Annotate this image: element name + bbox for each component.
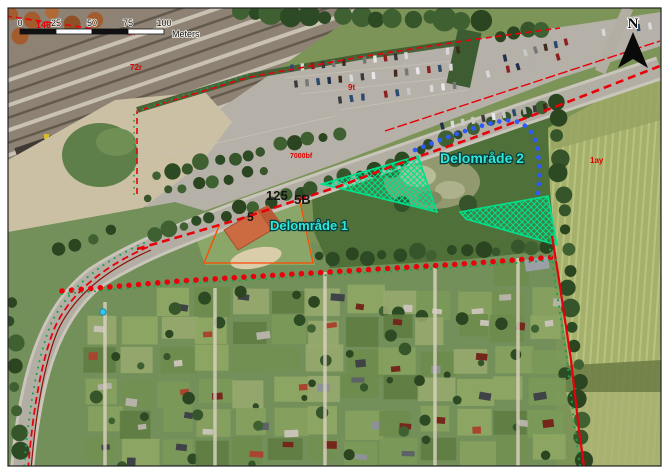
- garden-house: [355, 359, 366, 367]
- garden-house: [330, 293, 345, 301]
- garden-house: [391, 366, 401, 372]
- tree: [565, 265, 577, 277]
- parked-car: [453, 82, 457, 89]
- tree: [280, 6, 301, 27]
- tree: [215, 155, 225, 165]
- tree: [548, 163, 567, 182]
- garden-house: [472, 426, 481, 433]
- garden-plot: [268, 438, 303, 460]
- tree: [318, 11, 331, 24]
- tree: [221, 211, 232, 222]
- parked-car: [371, 72, 375, 79]
- tree: [476, 241, 493, 258]
- parked-car: [405, 68, 409, 75]
- tree: [4, 316, 14, 326]
- north-label: N: [628, 16, 639, 32]
- tree: [161, 221, 178, 238]
- parked-car: [361, 93, 365, 100]
- garden-tree: [163, 353, 170, 360]
- garden-plot: [163, 406, 192, 432]
- tree: [182, 163, 193, 174]
- garden-tree: [385, 329, 397, 341]
- garden-tree: [108, 418, 115, 425]
- garden-plot: [232, 380, 263, 408]
- garden-plot: [121, 347, 153, 373]
- tree: [8, 358, 23, 373]
- garden-tree: [308, 296, 320, 308]
- garden-house: [284, 430, 298, 438]
- garden-house: [174, 360, 183, 367]
- tree: [559, 204, 571, 216]
- tree: [243, 150, 254, 161]
- parcel-label-72r: 72r: [130, 63, 142, 72]
- garden-tree: [182, 392, 195, 405]
- parked-car: [430, 85, 434, 92]
- garden-plot: [496, 435, 527, 463]
- garden-house: [476, 353, 488, 361]
- tree: [492, 247, 500, 255]
- parked-car: [305, 79, 309, 86]
- garden-plot: [195, 345, 229, 371]
- garden-tree: [192, 409, 203, 420]
- garden-plot: [346, 317, 378, 347]
- garden-tree: [253, 421, 263, 431]
- garden-house: [393, 319, 403, 326]
- tree: [11, 405, 22, 416]
- garden-house: [402, 451, 415, 457]
- tree: [326, 252, 340, 266]
- garden-tree: [165, 330, 173, 338]
- garden-tree: [301, 395, 307, 401]
- garden-tree: [387, 377, 394, 384]
- scale-segment: [128, 29, 164, 34]
- tree: [511, 240, 525, 254]
- garden-tree: [541, 451, 550, 460]
- parked-car: [327, 77, 331, 84]
- tree: [426, 250, 437, 261]
- garden-plot: [232, 437, 262, 465]
- tree: [203, 212, 214, 223]
- tree: [68, 239, 81, 252]
- scale-tick-0: 0: [17, 18, 22, 28]
- garden-tree: [294, 314, 306, 326]
- tree: [11, 425, 28, 442]
- tree: [377, 250, 386, 259]
- garden-house: [480, 320, 489, 326]
- garden-plot: [122, 316, 158, 344]
- tree: [360, 251, 375, 266]
- tree: [164, 185, 172, 193]
- tree: [255, 147, 265, 157]
- tree: [301, 132, 314, 145]
- tree: [88, 234, 98, 244]
- garden-house: [88, 352, 97, 360]
- tree: [393, 248, 407, 262]
- map-figure: 146 72r 9t 7000bf 1ay 125 5B 5 Delområde…: [0, 0, 670, 474]
- garden-tree: [444, 372, 451, 379]
- tree: [471, 10, 493, 32]
- tree: [144, 195, 152, 203]
- parked-car: [363, 57, 367, 64]
- parcel-label-146: 146: [36, 20, 51, 30]
- garden-plot: [236, 408, 266, 435]
- tree: [192, 153, 209, 170]
- parked-car: [449, 64, 453, 71]
- tree: [232, 200, 246, 214]
- garden-plot: [457, 379, 494, 406]
- garden-house: [499, 294, 511, 301]
- tree: [562, 243, 575, 256]
- garden-tree: [399, 343, 412, 356]
- tree: [333, 127, 346, 140]
- garden-tree: [111, 352, 120, 361]
- garden-plot: [415, 317, 443, 345]
- tree: [550, 129, 563, 142]
- garden-plot: [85, 437, 115, 461]
- garden-plot: [494, 261, 529, 286]
- tree: [548, 94, 565, 111]
- garden-plot: [196, 441, 229, 469]
- garden-house: [355, 303, 364, 310]
- garden-house: [250, 451, 264, 458]
- label-125: 125: [266, 188, 288, 203]
- garden-tree: [90, 391, 103, 404]
- tree: [9, 382, 19, 392]
- tree: [555, 186, 572, 203]
- tree: [452, 12, 470, 30]
- garden-tree: [308, 379, 316, 387]
- parked-car: [290, 64, 294, 71]
- garden-house: [203, 331, 212, 337]
- tree: [567, 322, 578, 333]
- garden-plot: [83, 347, 115, 372]
- garden-tree: [478, 360, 485, 367]
- garden-house: [403, 305, 412, 313]
- tree: [152, 171, 161, 180]
- tree: [180, 222, 189, 231]
- scale-segment: [92, 29, 128, 34]
- tree: [242, 166, 253, 177]
- garden-tree: [495, 318, 507, 330]
- tree: [346, 247, 359, 260]
- scale-tick-50: 50: [87, 18, 97, 28]
- garden-house: [125, 398, 137, 407]
- tree: [334, 7, 352, 25]
- tree: [273, 137, 287, 151]
- garden-tree: [140, 412, 149, 421]
- tree: [258, 0, 283, 25]
- garden-house: [176, 444, 188, 452]
- tree: [232, 2, 250, 20]
- parcel-label-1ay: 1ay: [590, 156, 604, 165]
- garden-house: [351, 377, 364, 382]
- label-5: 5: [247, 210, 254, 224]
- garden-plot: [529, 378, 566, 405]
- parked-car: [446, 48, 450, 55]
- garden-house: [472, 308, 484, 314]
- grass-mound-light: [96, 128, 136, 156]
- garden-tree: [414, 375, 425, 386]
- garden-tree: [419, 415, 430, 426]
- garden-tree: [198, 292, 211, 305]
- tree: [7, 334, 24, 351]
- scale-tick-75: 75: [123, 18, 133, 28]
- scale-unit-label: Meters: [172, 29, 200, 39]
- garden-plot: [307, 438, 336, 461]
- garden-tree: [292, 291, 301, 300]
- tree: [405, 11, 422, 28]
- garden-tree: [137, 362, 144, 369]
- parcel-label-9t: 9t: [348, 83, 355, 92]
- garden-tree: [399, 426, 410, 437]
- tree: [193, 177, 205, 189]
- tree: [260, 167, 268, 175]
- garden-tree: [422, 435, 431, 444]
- scale-tick-100: 100: [156, 18, 171, 28]
- parked-car: [441, 83, 445, 90]
- garden-house: [436, 417, 445, 424]
- garden-house: [283, 442, 294, 448]
- garden-house: [202, 429, 213, 435]
- parked-car: [394, 70, 398, 77]
- tree: [11, 442, 29, 460]
- label-delomraade-2: Delområde 2: [440, 150, 524, 166]
- scale-tick-25: 25: [51, 18, 61, 28]
- tree: [461, 244, 473, 256]
- tree: [224, 175, 234, 185]
- garden-tree: [456, 312, 469, 325]
- tree: [368, 12, 384, 28]
- garden-house: [127, 457, 136, 465]
- tree: [147, 227, 162, 242]
- garden-plot: [231, 347, 267, 372]
- tree: [524, 241, 538, 255]
- parked-car: [338, 76, 342, 83]
- parcel-label-road: 7000bf: [290, 153, 313, 160]
- parked-car: [407, 88, 411, 95]
- tree: [447, 245, 457, 255]
- garden-plot: [272, 291, 307, 313]
- garden-tree: [453, 396, 462, 405]
- label-5b: 5B: [294, 192, 311, 207]
- scale-segment: [56, 29, 92, 34]
- garden-house: [542, 419, 554, 428]
- garden-tree: [360, 383, 368, 391]
- garden-tree: [344, 449, 355, 460]
- tree: [206, 175, 219, 188]
- tree: [574, 359, 585, 370]
- tree: [106, 225, 116, 235]
- tree: [52, 242, 65, 255]
- garden-tree: [169, 302, 182, 315]
- tree: [382, 9, 401, 28]
- aerial-map-canvas: 146 72r 9t 7000bf 1ay 125 5B 5 Delområde…: [0, 0, 670, 474]
- tree: [560, 224, 570, 234]
- garden-plot: [379, 438, 417, 464]
- tree: [409, 243, 426, 260]
- tree: [319, 133, 328, 142]
- garden-plot: [267, 347, 299, 370]
- parked-car: [373, 55, 377, 62]
- tree: [164, 163, 180, 179]
- tree: [229, 153, 242, 166]
- label-delomraade-1: Delområde 1: [270, 218, 348, 233]
- tree: [191, 216, 201, 226]
- tree: [177, 184, 186, 193]
- tree: [287, 135, 302, 150]
- garden-house: [545, 320, 554, 327]
- tree: [550, 109, 568, 127]
- garden-tree: [248, 460, 255, 467]
- scale-segment: [20, 29, 56, 34]
- garden-tree: [531, 325, 539, 333]
- tree: [315, 252, 324, 261]
- garden-plot: [460, 441, 496, 469]
- garden-tree: [235, 286, 247, 298]
- autumn-tree: [45, 5, 59, 19]
- garden-tree: [307, 324, 316, 333]
- garden-tree: [346, 350, 354, 358]
- map-content: 146 72r 9t 7000bf 1ay 125 5B 5 Delområde…: [0, 0, 661, 472]
- blue-point-marker: [100, 309, 106, 315]
